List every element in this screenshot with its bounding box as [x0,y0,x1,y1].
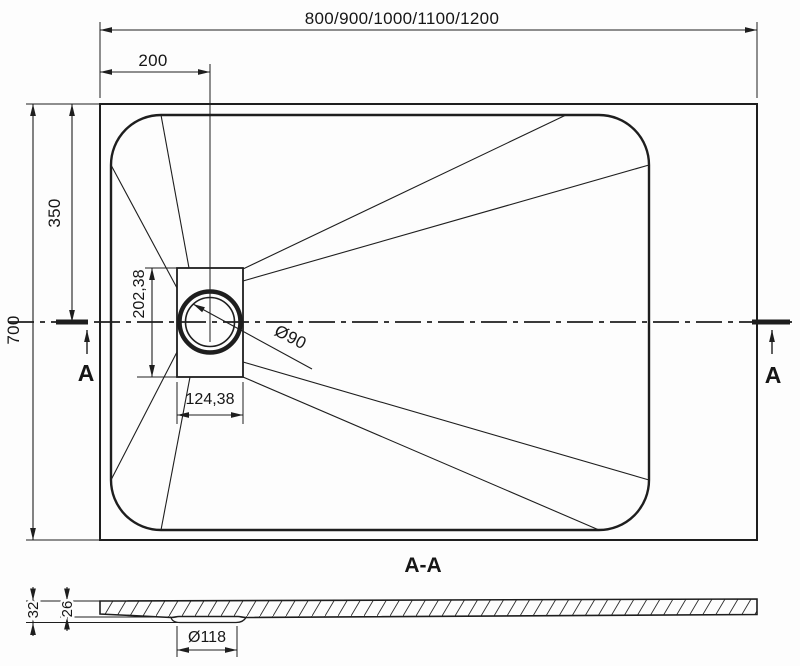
slope-line [243,115,566,269]
plan-view: A A 800/900/1000/1100/1200 200 700 350 [4,9,792,540]
dimension-text-drain-box-width: 124,38 [186,391,235,408]
dimension-text-recess-diameter: Ø118 [188,629,226,646]
dimension-recess-diameter: Ø118 [177,626,237,657]
dimension-text-drain-box-height: 202,38 [131,269,148,318]
technical-drawing-sheet: A A 800/900/1000/1100/1200 200 700 350 [0,0,800,666]
dimension-text-slab-thickness: 26 [59,601,76,618]
dimension-text-drain-offset-x: 200 [138,51,167,70]
slope-line [161,115,189,268]
dimension-text-drain-offset-y: 350 [45,198,64,227]
dimension-text-drain-hole-diameter: Ø90 [271,321,309,353]
section-marker-label-left: A [78,360,95,386]
section-title: A-A [404,554,441,577]
shower-tray-drawing: A A 800/900/1000/1100/1200 200 700 350 [0,0,800,666]
dimension-drain-offset-y: 350 [45,104,72,322]
dimension-drain-box-width: 124,38 [177,382,243,424]
dimension-text-total-thickness: 32 [25,602,42,619]
slope-line [243,362,649,480]
dimension-text-overall-width: 800/900/1000/1100/1200 [305,9,499,28]
section-slab-profile [100,599,757,618]
section-view: A-A 32 26 Ø118 [25,554,757,657]
section-drain-recess-shell [171,618,246,623]
slope-line [243,165,649,281]
slope-line [111,352,177,480]
dimension-text-overall-depth: 700 [4,315,23,344]
dimension-drain-offset-x: 200 [100,51,210,72]
dimension-overall-width: 800/900/1000/1100/1200 [100,9,757,98]
slope-line [243,377,599,530]
section-marker-label-right: A [765,362,782,388]
